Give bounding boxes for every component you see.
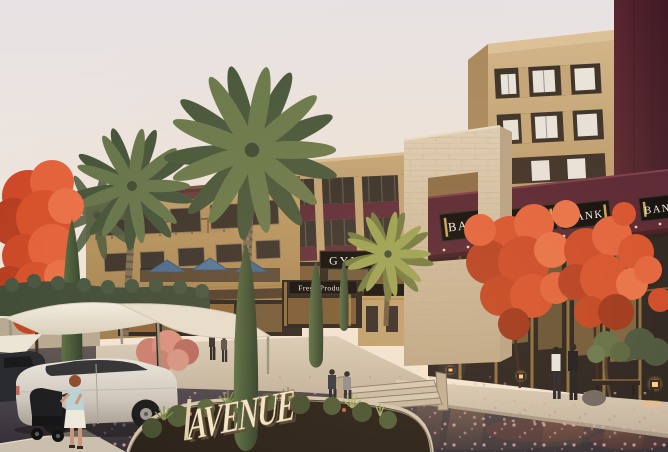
warm-haze-overlay <box>0 0 668 452</box>
rendered-street-scene: GYM Fresh Produce <box>0 0 668 452</box>
